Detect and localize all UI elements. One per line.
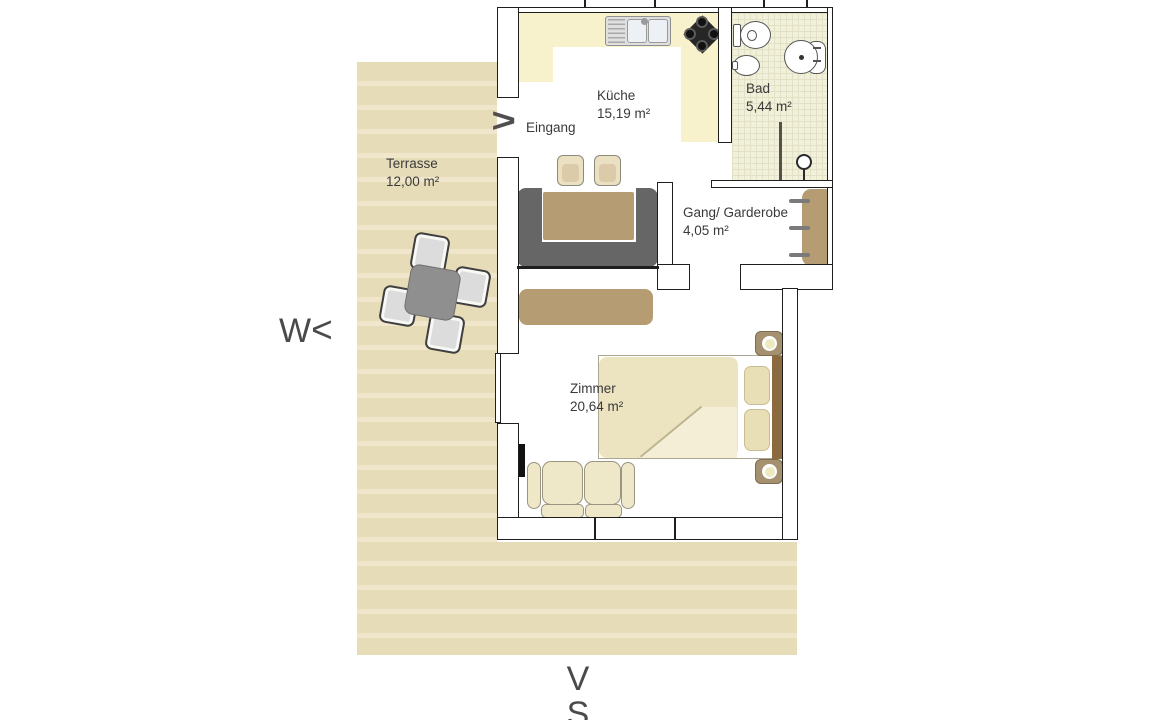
compass-west-letter: W xyxy=(279,312,311,350)
room-area: 4,05 m² xyxy=(683,222,788,240)
compass-west: W< xyxy=(279,312,333,349)
room-label-gang: Gang/ Garderobe 4,05 m² xyxy=(683,204,788,240)
wall-kitchen-bath-divider xyxy=(718,7,732,143)
wall-gang-south xyxy=(740,264,833,290)
lamp-shade xyxy=(765,339,775,349)
south-arrow-icon: V xyxy=(556,662,600,697)
sofa-armrest xyxy=(621,462,635,509)
wardrobe-handle-icon xyxy=(789,226,810,230)
room-label-terrasse: Terrasse 12,00 m² xyxy=(386,155,439,191)
nightstand-icon xyxy=(755,459,783,484)
partition-line-zimmer xyxy=(517,266,659,269)
room-name: Terrasse xyxy=(386,155,439,173)
terrace-table-icon xyxy=(403,263,462,322)
sofa-back-cushion xyxy=(584,461,621,505)
washbasin-tap-icon xyxy=(813,60,821,62)
toilet-drain xyxy=(747,30,757,41)
floor-plan: Terrasse 12,00 m² Küche 15,19 m² Bad 5,4… xyxy=(0,0,1152,720)
entrance-arrow-icon: > xyxy=(491,104,516,138)
dining-chair-icon xyxy=(557,155,584,186)
wall-west-upper xyxy=(497,7,519,98)
room-area: 20,64 m² xyxy=(570,398,623,416)
wardrobe-handle-icon xyxy=(789,199,810,203)
wall-north xyxy=(497,7,833,13)
shower-head-icon xyxy=(796,154,812,170)
sofa-armrest xyxy=(527,462,541,509)
sofa-back-cushion xyxy=(542,461,583,505)
nightstand-icon xyxy=(755,331,783,356)
kitchen-counter-right xyxy=(681,47,718,142)
shower-partition xyxy=(779,122,782,181)
room-label-bad: Bad 5,44 m² xyxy=(746,80,792,116)
wall-west-middle xyxy=(497,157,519,354)
kitchen-counter-left xyxy=(519,47,553,82)
window-tick xyxy=(674,518,676,539)
room-label-zimmer: Zimmer 20,64 m² xyxy=(570,380,623,416)
west-arrow-icon: < xyxy=(311,309,333,350)
washbasin-tap-icon xyxy=(813,47,821,49)
room-area: 15,19 m² xyxy=(597,105,650,123)
stove-burner-icon xyxy=(684,28,696,40)
window-tick xyxy=(594,518,596,539)
room-area: 12,00 m² xyxy=(386,173,439,191)
sofa-seat-cushion xyxy=(541,504,584,518)
wall-nook-foot xyxy=(657,264,690,290)
sink-drainer-icon xyxy=(608,19,625,43)
room-area: 5,44 m² xyxy=(746,98,792,116)
sofa-seat-cushion xyxy=(585,504,622,518)
entrance-label: Eingang xyxy=(526,120,576,135)
room-name: Küche xyxy=(597,87,650,105)
chair-seat xyxy=(562,164,579,182)
lamp-icon xyxy=(762,464,777,479)
compass-south: V S xyxy=(556,662,600,720)
wardrobe-handle-icon xyxy=(789,253,810,257)
room-name: Zimmer xyxy=(570,380,623,398)
window-tick xyxy=(654,0,656,8)
wall-east-upper xyxy=(827,7,833,290)
wall-bath-south xyxy=(711,180,833,188)
window-tick xyxy=(584,0,586,8)
dining-table-icon xyxy=(543,192,634,240)
wall-east-zimmer xyxy=(782,288,798,540)
room-label-kueche: Küche 15,19 m² xyxy=(597,87,650,123)
stove-icon xyxy=(683,15,721,53)
room-name: Bad xyxy=(746,80,792,98)
lamp-icon xyxy=(762,336,777,351)
bidet-tap xyxy=(732,61,738,70)
sink-basin-icon xyxy=(648,19,668,43)
pillow-icon xyxy=(744,409,770,451)
room-name: Gang/ Garderobe xyxy=(683,204,788,222)
washbasin-drain xyxy=(799,55,804,60)
terrace-deck-bottom xyxy=(357,542,797,655)
terrace-door-glazing xyxy=(495,353,501,423)
pillow-icon xyxy=(744,366,770,405)
dining-chair-icon xyxy=(594,155,621,186)
stove-burner-icon xyxy=(696,40,708,52)
wall-south xyxy=(497,517,798,540)
window-tick xyxy=(763,0,765,8)
chair-seat xyxy=(599,164,616,182)
sink-faucet-icon xyxy=(641,18,648,25)
sideboard-icon xyxy=(519,289,653,325)
window-tick xyxy=(806,0,808,8)
compass-south-letter: S xyxy=(556,697,600,720)
lamp-shade xyxy=(765,467,775,477)
stove-burner-icon xyxy=(696,16,708,28)
wall-nook-east xyxy=(657,182,673,266)
